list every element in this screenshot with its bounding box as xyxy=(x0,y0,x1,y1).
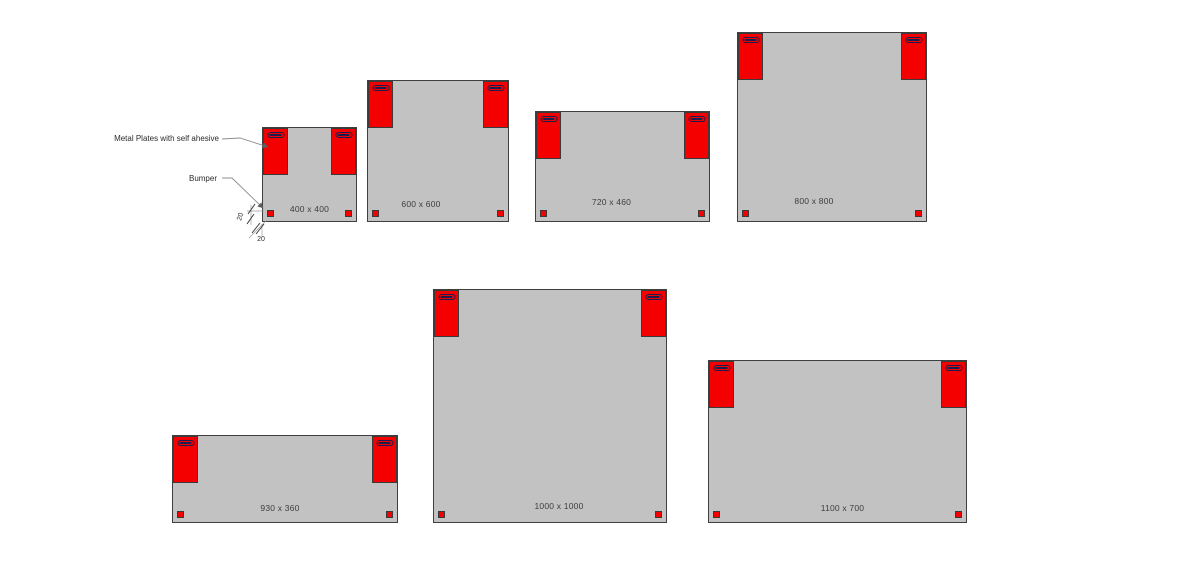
plate-slot-icon xyxy=(177,440,194,446)
bumper-label: Bumper xyxy=(150,174,217,183)
plate-slot-icon xyxy=(688,116,705,122)
bumper-bottom-right xyxy=(915,210,922,217)
bumper-bottom-left xyxy=(540,210,547,217)
panel-size-label: 1000 x 1000 xyxy=(443,501,675,511)
metal-plate-top-right xyxy=(641,290,666,337)
metal-plate-top-right xyxy=(901,33,926,80)
bumper-bottom-left xyxy=(742,210,749,217)
plate-slot-icon xyxy=(645,294,662,300)
panel-1100x700: 1100 x 700 xyxy=(708,360,967,523)
dim-20-vertical-label: 20 xyxy=(236,212,245,222)
metal-plate-top-left xyxy=(263,128,288,175)
panel-size-label: 400 x 400 xyxy=(263,204,356,214)
panel-930x360: 930 x 360 xyxy=(172,435,398,523)
metal-plate-top-left xyxy=(536,112,561,159)
metal-plate-top-right xyxy=(331,128,356,175)
metal-plate-top-right xyxy=(684,112,709,159)
panel-size-label: 1100 x 700 xyxy=(714,503,971,513)
panel-800x800: 800 x 800 xyxy=(737,32,927,222)
metal-plate-top-left xyxy=(434,290,459,337)
panel-size-label: 720 x 460 xyxy=(525,197,698,207)
bumper-bottom-left xyxy=(372,210,379,217)
metal-plate-top-left xyxy=(173,436,198,483)
plate-slot-icon xyxy=(905,37,922,43)
panel-720x460: 720 x 460 xyxy=(535,111,710,222)
plate-slot-icon xyxy=(742,37,759,43)
dimension-vertical-20: 20 xyxy=(236,204,264,225)
plate-slot-icon xyxy=(267,132,284,138)
bumper-leader-line xyxy=(222,178,263,208)
bumper-bottom-right xyxy=(497,210,504,217)
metal-plate-top-right xyxy=(483,81,508,128)
plate-slot-icon xyxy=(335,132,352,138)
plate-slot-icon xyxy=(376,440,393,446)
panel-size-label: 600 x 600 xyxy=(351,199,491,209)
plate-slot-icon xyxy=(713,365,730,371)
plate-slot-icon xyxy=(487,85,504,91)
plate-slot-icon xyxy=(438,294,455,300)
metal-plate-top-right xyxy=(941,361,966,408)
panel-size-label: 930 x 360 xyxy=(168,503,392,513)
bumper-bottom-right xyxy=(655,511,662,518)
bumper-bottom-right xyxy=(698,210,705,217)
panel-size-label: 800 x 800 xyxy=(720,196,908,206)
metal-plates-label: Metal Plates with self ahesive xyxy=(104,134,219,143)
dimension-horizontal-20: 20 xyxy=(249,220,267,243)
plate-slot-icon xyxy=(540,116,557,122)
metal-plate-top-left xyxy=(709,361,734,408)
metal-plate-top-left xyxy=(368,81,393,128)
panel-600x600: 600 x 600 xyxy=(367,80,509,222)
metal-plate-top-right xyxy=(372,436,397,483)
panel-400x400: 400 x 400 xyxy=(262,127,357,222)
diagram-canvas: Metal Plates with self ahesive Bumper 40… xyxy=(0,0,1200,579)
panel-1000x1000: 1000 x 1000 xyxy=(433,289,667,523)
plate-slot-icon xyxy=(945,365,962,371)
plate-slot-icon xyxy=(372,85,389,91)
bumper-bottom-left xyxy=(438,511,445,518)
metal-plate-top-left xyxy=(738,33,763,80)
dim-20-horizontal-label: 20 xyxy=(257,236,265,243)
